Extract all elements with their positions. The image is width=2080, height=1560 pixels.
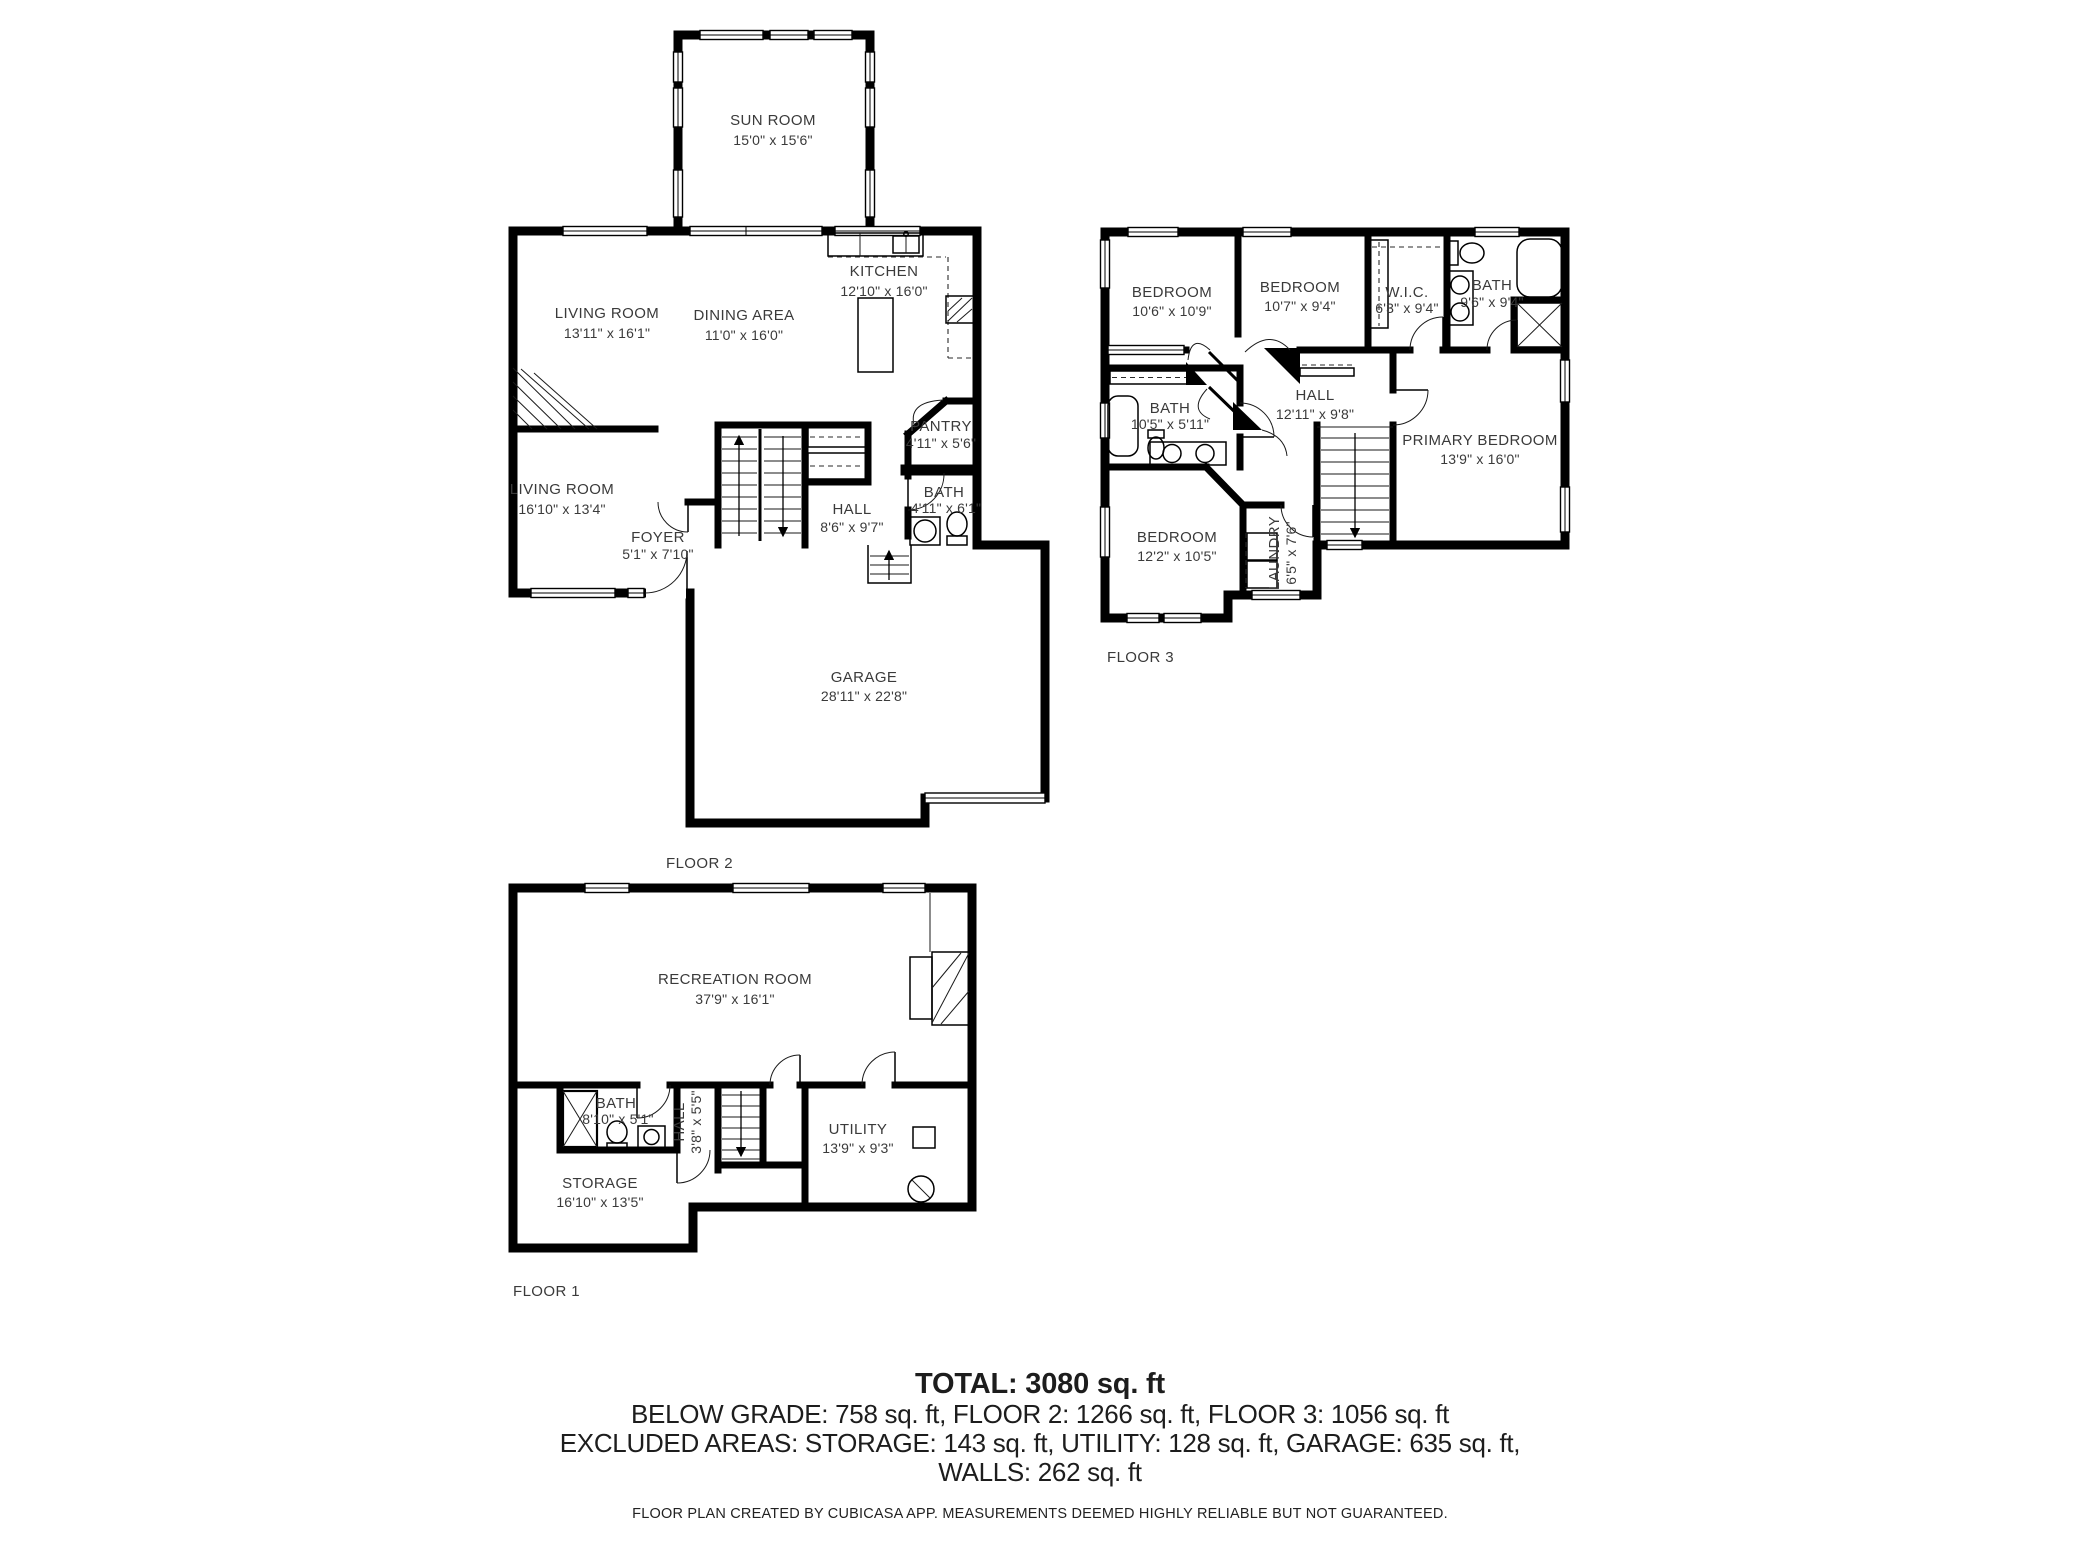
room-dims-primary-bedroom: 13'9" x 16'0"	[1440, 451, 1519, 467]
room-label-floor1-bath: BATH	[596, 1095, 637, 1112]
walls-area: WALLS: 262 sq. ft	[0, 1458, 2080, 1487]
room-dims-storage: 16'10" x 13'5"	[556, 1194, 643, 1210]
room-label-floor2-hall: HALL	[832, 501, 871, 518]
room-label-bedroom-1: BEDROOM	[1132, 284, 1212, 301]
room-label-floor2-bath: BATH	[924, 484, 965, 501]
water-heater-icon	[908, 1176, 934, 1202]
room-label-bedroom-3: BEDROOM	[1137, 529, 1217, 546]
room-dims-floor3-bath: 10'5" x 5'11"	[1131, 416, 1209, 432]
room-dims-floor1-bath: 8'10" x 5'1"	[582, 1111, 653, 1127]
room-label-utility: UTILITY	[829, 1121, 888, 1138]
room-dims-laundry: 6'5" x 7'6"	[1283, 521, 1299, 584]
room-dims-foyer: 5'1" x 7'10"	[622, 546, 693, 562]
total-area: TOTAL: 3080 sq. ft	[0, 1368, 2080, 1400]
room-label-kitchen: KITCHEN	[850, 263, 919, 280]
floor1-sink-icon	[638, 1126, 665, 1148]
disclaimer-text: FLOOR PLAN CREATED BY CUBICASA APP. MEAS…	[0, 1506, 2080, 1522]
room-dims-sun-room: 15'0" x 15'6"	[733, 132, 812, 148]
room-dims-dining-area: 11'0" x 16'0"	[705, 327, 783, 343]
floor-2-label: FLOOR 2	[666, 855, 733, 872]
room-dims-living-room-lower: 16'10" x 13'4"	[518, 501, 605, 517]
room-label-sun-room: SUN ROOM	[730, 112, 816, 129]
stair-railing	[1300, 365, 1354, 376]
room-dims-bedroom-2: 10'7" x 9'4"	[1264, 298, 1335, 314]
room-label-storage: STORAGE	[562, 1175, 638, 1192]
floor-plan-canvas: SUN ROOM 15'0" x 15'6" LIVING ROOM 13'11…	[0, 0, 2080, 1560]
floor-plan-page: { "colors": { "walls": "#000000", "label…	[0, 0, 2080, 1560]
room-label-foyer: FOYER	[631, 529, 685, 546]
kitchen-island	[858, 298, 893, 372]
room-dims-bedroom-1: 10'6" x 10'9"	[1132, 303, 1211, 319]
room-label-floor3-hall: HALL	[1295, 387, 1334, 404]
floor-areas: BELOW GRADE: 758 sq. ft, FLOOR 2: 1266 s…	[0, 1400, 2080, 1429]
floor-1-plan: RECREATION ROOM 37'9" x 16'1" BATH 8'10"…	[513, 884, 972, 1301]
room-dims-recreation-room: 37'9" x 16'1"	[695, 991, 774, 1007]
room-dims-floor3-hall: 12'11" x 9'8"	[1276, 406, 1354, 422]
room-label-living-room-main: LIVING ROOM	[555, 305, 659, 322]
room-label-dining-area: DINING AREA	[693, 307, 794, 324]
floor1-stairs-icon	[722, 1091, 760, 1159]
floor-3-plan: BEDROOM 10'6" x 10'9" BEDROOM 10'7" x 9'…	[1101, 228, 1570, 667]
excluded-areas: EXCLUDED AREAS: STORAGE: 143 sq. ft, UTI…	[0, 1429, 2080, 1458]
room-label-living-room-lower: LIVING ROOM	[510, 481, 614, 498]
stairs-down-icon	[513, 368, 597, 429]
room-dims-wic: 6'3" x 9'4"	[1375, 300, 1438, 316]
room-dims-floor2-bath: 4'11" x 6'1"	[911, 500, 981, 516]
room-dims-bedroom-3: 12'2" x 10'5"	[1137, 548, 1216, 564]
stove-icon	[946, 296, 974, 323]
room-label-wic: W.I.C.	[1385, 284, 1428, 301]
room-label-garage: GARAGE	[831, 669, 898, 686]
room-label-floor1-hall: HALL	[671, 1102, 688, 1141]
room-dims-utility: 13'9" x 9'3"	[822, 1140, 893, 1156]
area-summary: TOTAL: 3080 sq. ft BELOW GRADE: 758 sq. …	[0, 1368, 2080, 1487]
garage-door	[925, 793, 1045, 803]
room-label-floor3-bath: BATH	[1150, 400, 1191, 417]
closet-shelves	[808, 427, 866, 479]
room-label-recreation-room: RECREATION ROOM	[658, 971, 812, 988]
room-label-primary-bedroom: PRIMARY BEDROOM	[1402, 432, 1557, 449]
floor-1-label: FLOOR 1	[513, 1283, 580, 1300]
room-label-laundry: LAUNDRY	[1266, 516, 1283, 590]
floor2-toilet-icon	[947, 512, 967, 545]
foyer-hall-door-arc	[658, 502, 688, 532]
room-label-pantry: PANTRY	[910, 418, 972, 435]
room-dims-pantry: 4'11" x 5'6"	[906, 435, 976, 451]
garage-step-icon	[868, 540, 912, 584]
room-dims-kitchen: 12'10" x 16'0"	[840, 283, 927, 299]
floor-3-label: FLOOR 3	[1107, 649, 1174, 666]
fireplace-icon	[910, 893, 970, 1025]
room-label-bath-ensuite: BATH	[1472, 277, 1513, 294]
floor-2-plan: SUN ROOM 15'0" x 15'6" LIVING ROOM 13'11…	[510, 31, 1045, 873]
room-label-bedroom-2: BEDROOM	[1260, 279, 1340, 296]
furnace-icon	[913, 1127, 935, 1148]
room-dims-living-room-main: 13'11" x 16'1"	[564, 325, 650, 341]
room-dims-garage: 28'11" x 22'8"	[821, 688, 907, 704]
room-dims-bath-ensuite: 9'6" x 9'4"	[1460, 294, 1523, 310]
room-dims-floor1-hall: 3'8" x 5'5"	[688, 1090, 704, 1153]
floor2-bath-sink-icon	[910, 517, 940, 545]
floor3-stairs-icon	[1317, 427, 1393, 537]
room-dims-floor2-hall: 8'6" x 9'7"	[820, 519, 883, 535]
